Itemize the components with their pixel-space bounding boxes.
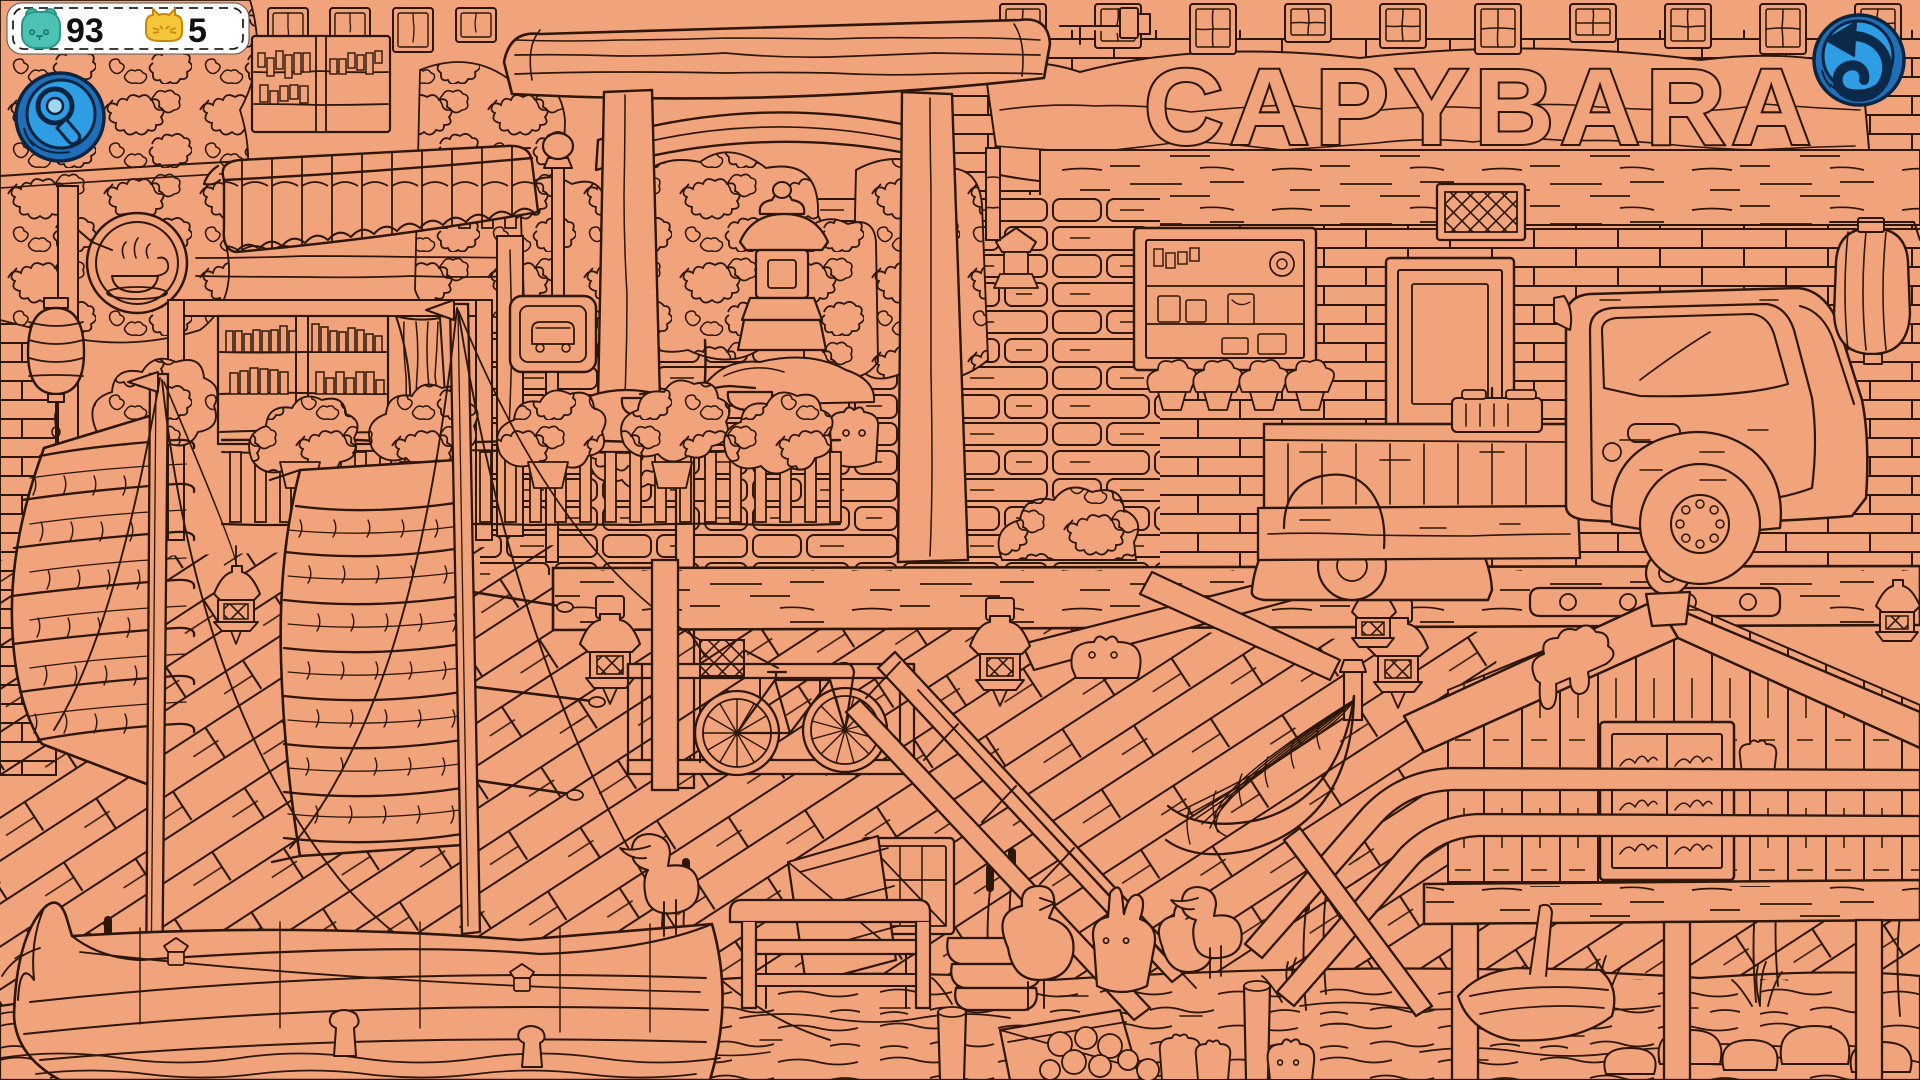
svg-text:93: 93: [66, 12, 104, 50]
svg-text:5: 5: [188, 12, 207, 50]
svg-text:CAPYBARA: CAPYBARA: [1144, 47, 1817, 168]
